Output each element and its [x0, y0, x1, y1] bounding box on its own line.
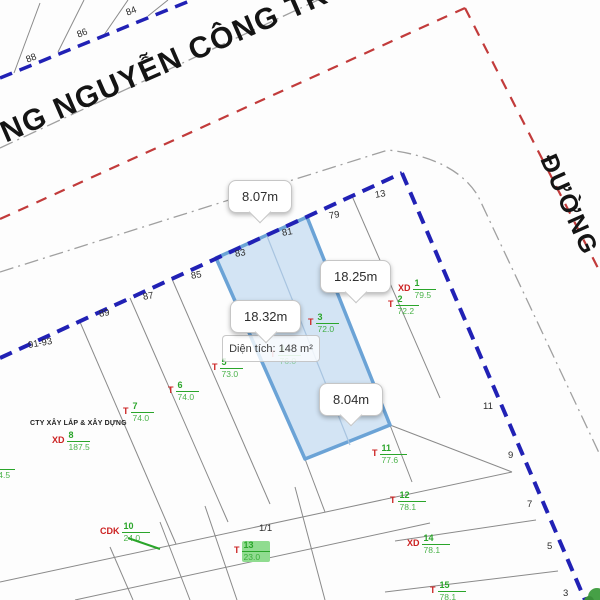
- lot-label: T 1578.1: [430, 581, 466, 600]
- house-number: 7: [527, 499, 532, 510]
- company-label: CTY XÂY LẮP & XÂY DỰNG: [30, 420, 127, 427]
- area-label: Diện tích: 148 m²: [222, 335, 320, 362]
- dimension-bubble-left: 18.32m: [230, 300, 301, 333]
- block-label: 1/1: [259, 523, 272, 534]
- lot-label: T 1177.6: [372, 444, 407, 465]
- house-number: 79: [328, 209, 340, 222]
- lot-label: T 674.0: [168, 381, 199, 402]
- dimension-bubble-top: 8.07m: [228, 180, 292, 213]
- lot-label: CDK 1024.0: [100, 522, 150, 543]
- lot-label: XD 8187.5: [52, 431, 90, 452]
- dimension-bubble-bottom: 8.04m: [319, 383, 383, 416]
- lot-label: T 974.5: [0, 459, 15, 480]
- lot-label: T 272.2: [388, 295, 419, 316]
- house-number: 83: [234, 247, 246, 260]
- house-number: 9: [508, 450, 513, 461]
- lot-label: XD 1478.1: [407, 534, 450, 555]
- lot-label: T 774.0: [123, 402, 154, 423]
- house-number: 81: [281, 226, 293, 239]
- house-number: 11: [483, 401, 493, 412]
- house-number: 85: [190, 269, 202, 282]
- house-number: 89: [98, 307, 110, 320]
- house-number: 87: [142, 290, 154, 303]
- lot-label: T 1323.0: [234, 541, 270, 562]
- house-number: 5: [547, 541, 552, 552]
- lot-label: T 372.0: [308, 313, 339, 334]
- tree-icon: [584, 588, 600, 600]
- house-number: 13: [374, 188, 386, 201]
- map-canvas[interactable]: ĐƯỜNG NGUYỄN CÔNG TRỨ ĐƯỜNG 84 86 88 91-…: [0, 0, 600, 600]
- house-number: 3: [563, 588, 568, 599]
- lot-label: T 1278.1: [390, 491, 426, 512]
- dimension-bubble-right: 18.25m: [320, 260, 391, 293]
